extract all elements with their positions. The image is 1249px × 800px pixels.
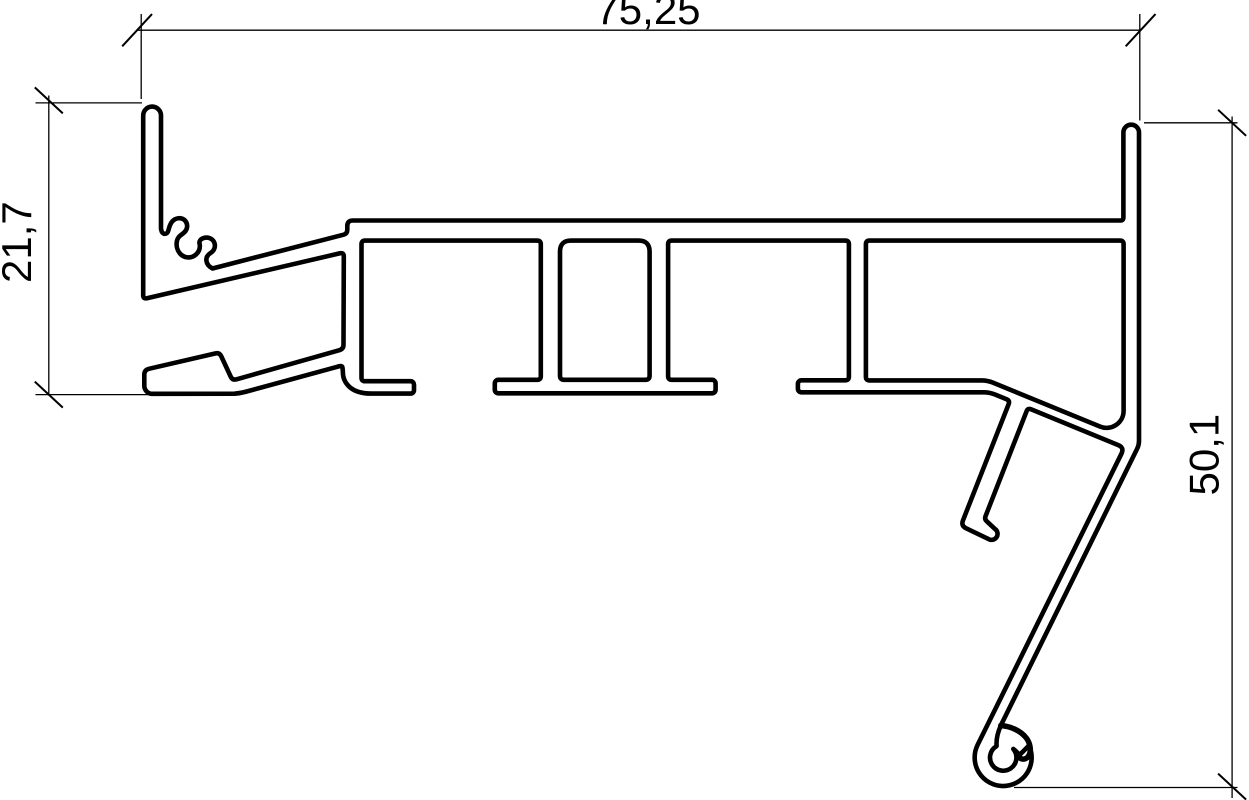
svg-text:75,25: 75,25 xyxy=(595,0,700,33)
svg-text:21,7: 21,7 xyxy=(0,201,40,283)
svg-text:50,1: 50,1 xyxy=(1181,414,1228,496)
